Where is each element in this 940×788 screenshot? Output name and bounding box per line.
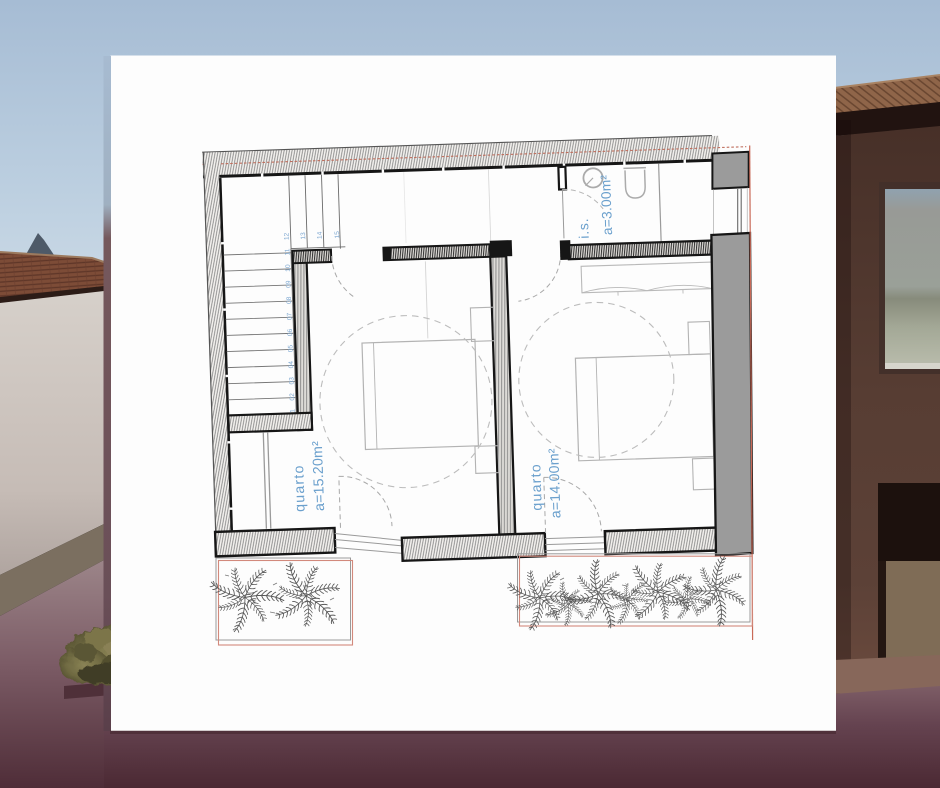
- svg-text:a=15.20m²: a=15.20m²: [310, 441, 328, 512]
- svg-text:14: 14: [317, 231, 324, 239]
- svg-text:02: 02: [289, 393, 296, 401]
- svg-text:09: 09: [285, 280, 292, 288]
- svg-text:quarto: quarto: [528, 463, 546, 511]
- svg-text:07: 07: [286, 312, 293, 320]
- svg-text:12: 12: [284, 232, 291, 240]
- svg-text:05: 05: [287, 344, 294, 352]
- svg-text:06: 06: [287, 328, 294, 336]
- svg-text:08: 08: [286, 296, 293, 304]
- svg-text:13: 13: [300, 232, 307, 240]
- svg-text:04: 04: [288, 361, 295, 369]
- svg-text:03: 03: [288, 377, 295, 385]
- svg-text:a=3.00m²: a=3.00m²: [598, 174, 615, 235]
- svg-text:quarto: quarto: [291, 464, 309, 512]
- svg-text:i.s.: i.s.: [576, 218, 592, 239]
- svg-text:11: 11: [284, 248, 291, 255]
- svg-text:15: 15: [334, 231, 341, 239]
- svg-text:10: 10: [285, 264, 292, 272]
- svg-text:a=14.00m²: a=14.00m²: [546, 448, 564, 519]
